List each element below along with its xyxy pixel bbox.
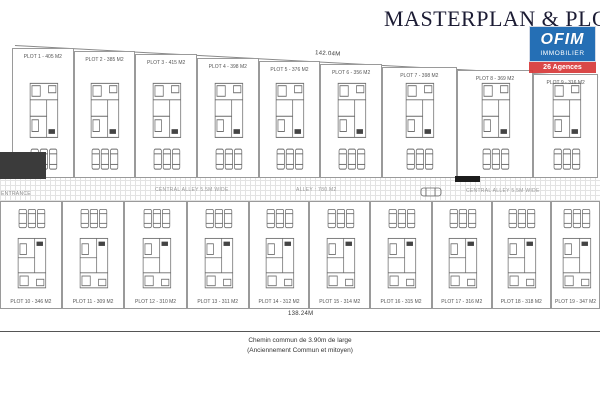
ofim-logo: OFIM IMMOBILIER 26 Agences: [529, 26, 596, 73]
logo-blue-box: OFIM IMMOBILIER: [529, 26, 596, 62]
floor-plan-icon: [553, 204, 599, 290]
plot-label: PLOT 17 - 316 M2: [433, 299, 491, 305]
plot-row-bottom: PLOT 10 - 346 M2PLOT 11 - 309 M2PLOT 12 …: [0, 201, 600, 309]
bottom-dimension-label: 138.24M: [288, 311, 313, 317]
plot-cell: PLOT 8 - 369 M2: [457, 70, 534, 178]
plot-cell: PLOT 5 - 376 M2: [259, 61, 321, 178]
plot-cell: PLOT 7 - 398 M2: [382, 67, 457, 178]
plot-label: PLOT 6 - 356 M2: [321, 70, 381, 76]
floor-plan-icon: [543, 81, 589, 175]
logo-brand: OFIM: [541, 32, 585, 48]
plot-label: PLOT 10 - 346 M2: [1, 299, 61, 305]
car-icon: [420, 184, 442, 194]
plot-label: PLOT 16 - 315 M2: [371, 299, 431, 305]
footer-note: Chemin commun de 3.90m de large (Ancienn…: [0, 336, 600, 356]
floor-plan-icon: [266, 81, 312, 175]
footer-line2: (Anciennement Commun et mitoyen): [0, 346, 600, 356]
alley-label-right: CENTRAL ALLEY 5.5M WIDE: [466, 188, 540, 194]
plot-label: PLOT 7 - 398 M2: [383, 73, 456, 79]
floor-plan-icon: [8, 204, 54, 290]
plot-row-top: PLOT 1 - 405 M2PLOT 2 - 385 M2PLOT 3 - 4…: [12, 48, 598, 178]
plot-label: PLOT 14 - 312 M2: [250, 299, 309, 305]
footer-line1: Chemin commun de 3.90m de large: [0, 336, 600, 346]
plot-cell: PLOT 4 - 398 M2: [197, 58, 259, 178]
floor-plan-icon: [498, 204, 544, 290]
entrance-label: ENTRANCE: [1, 191, 31, 197]
plot-label: PLOT 5 - 376 M2: [260, 67, 320, 73]
plot-label: PLOT 11 - 309 M2: [63, 299, 123, 305]
floor-plan-icon: [143, 81, 189, 175]
floor-plan-icon: [439, 204, 485, 290]
plot-label: PLOT 13 - 311 M2: [188, 299, 248, 305]
masterplan-canvas: MASTERPLAN & PLOT AL OFIM IMMOBILIER 26 …: [0, 0, 600, 400]
floor-plan-icon: [317, 204, 363, 290]
plot-cell: PLOT 2 - 385 M2: [74, 51, 136, 178]
logo-red-strip: 26 Agences: [529, 62, 596, 73]
plot-cell: PLOT 6 - 356 M2: [320, 64, 382, 178]
plot-label: PLOT 4 - 398 M2: [198, 64, 258, 70]
plot-cell: PLOT 19 - 347 M2: [551, 201, 600, 309]
plot-cell: PLOT 16 - 315 M2: [370, 201, 432, 309]
entrance-block: [0, 152, 46, 179]
plot-cell: PLOT 17 - 316 M2: [432, 201, 492, 309]
plot-cell: PLOT 3 - 415 M2: [135, 54, 197, 178]
floor-plan-icon: [70, 204, 116, 290]
plot-label: PLOT 2 - 385 M2: [75, 57, 135, 63]
gate-bar: [455, 176, 480, 182]
logo-subtitle: IMMOBILIER: [540, 50, 584, 57]
plot-cell: PLOT 12 - 310 M2: [124, 201, 186, 309]
floor-plan-icon: [205, 81, 251, 175]
plot-label: PLOT 19 - 347 M2: [552, 299, 599, 305]
logo-tagline: 26 Agences: [543, 64, 582, 71]
plot-cell: PLOT 13 - 311 M2: [187, 201, 249, 309]
plot-label: PLOT 18 - 318 M2: [493, 299, 551, 305]
floor-plan-icon: [378, 204, 424, 290]
plot-label: PLOT 1 - 405 M2: [13, 54, 73, 60]
plot-cell: PLOT 18 - 318 M2: [492, 201, 552, 309]
plot-cell: PLOT 10 - 346 M2: [0, 201, 62, 309]
floor-plan-icon: [256, 204, 302, 290]
plot-cell: PLOT 14 - 312 M2: [249, 201, 310, 309]
plot-label: PLOT 15 - 314 M2: [310, 299, 369, 305]
floor-plan-icon: [195, 204, 241, 290]
central-alley: CENTRAL ALLEY 5.5M WIDE ALLEY : 780 M2 C…: [0, 178, 600, 201]
plot-label: PLOT 12 - 310 M2: [125, 299, 185, 305]
floor-plan-icon: [328, 81, 374, 175]
footer-divider: [0, 331, 600, 332]
floor-plan-icon: [396, 81, 442, 175]
floor-plan-icon: [81, 81, 127, 175]
floor-plan-icon: [133, 204, 179, 290]
plot-cell: PLOT 9 - 316 M2: [533, 74, 598, 178]
plot-cell: PLOT 15 - 314 M2: [309, 201, 370, 309]
plot-cell: PLOT 11 - 309 M2: [62, 201, 124, 309]
floor-plan-icon: [472, 81, 518, 175]
alley-area-label: ALLEY : 780 M2: [296, 187, 337, 193]
alley-label-left: CENTRAL ALLEY 5.5M WIDE: [155, 187, 229, 193]
plot-label: PLOT 3 - 415 M2: [136, 60, 196, 66]
